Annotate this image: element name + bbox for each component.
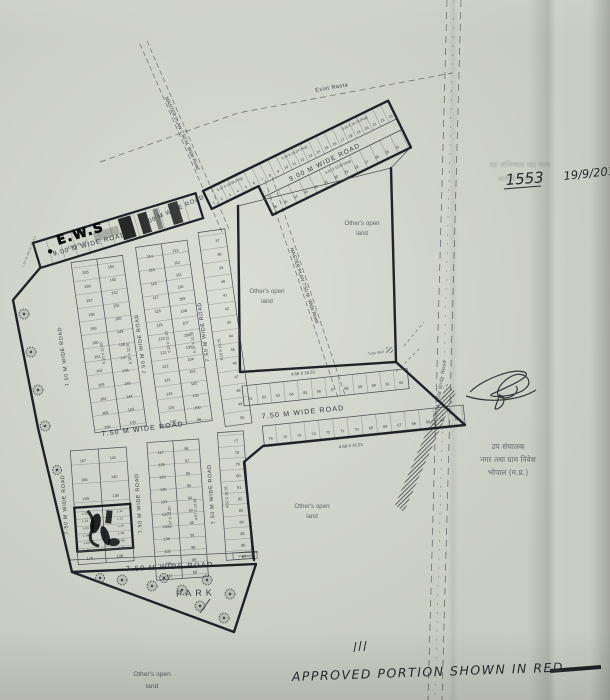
plot-number: L-12: [116, 509, 123, 513]
open-land-text: Other's open: [133, 671, 171, 678]
plot-number: 81: [237, 486, 242, 490]
plot-number: 72: [326, 431, 331, 435]
plot-number: L-06: [84, 548, 91, 552]
plot-number: 53: [276, 394, 281, 398]
approved-note-text: APPROVED PORTION SHOWN IN RED: [291, 660, 565, 685]
plot-number: 43: [227, 320, 232, 325]
open-land-text: land: [146, 683, 159, 690]
plot-number: 66: [412, 422, 417, 426]
plot-number: 42: [225, 307, 230, 312]
dim-label: 4.58 X 16.23: [291, 369, 316, 377]
road-label-750: 7.50 M WIDE ROAD: [207, 464, 217, 524]
plot-number: 92: [189, 521, 194, 525]
plot-number: 127: [157, 450, 164, 454]
road-label-750: 7.50 M WIDE ROAD: [134, 473, 144, 533]
plot-number: 48: [236, 388, 241, 393]
plot-number: 94: [188, 496, 193, 500]
plot-number: 140: [111, 475, 118, 479]
plot-number: 129: [159, 475, 166, 479]
plot-number: 44: [228, 334, 233, 339]
plot-number: 70: [354, 428, 359, 432]
open-land-label-4: Other's open land: [133, 671, 171, 690]
open-land-text: Other's open: [294, 503, 330, 510]
plot-number: 80: [236, 474, 241, 478]
plot-number: 113: [172, 248, 179, 253]
plot-number: 86: [241, 543, 246, 547]
open-land-text: Other's open: [344, 220, 380, 227]
plot-number: 46: [232, 361, 237, 366]
plot-number: L-10: [118, 524, 125, 528]
road-label-750: 7.50 M WIDE ROAD: [57, 326, 71, 386]
approval-note: APPROVED PORTION SHOWN IN RED: [291, 641, 601, 684]
plot-number: 119: [156, 323, 163, 328]
exist-24m-road: Exist.24.00M Wide Road: [396, 0, 461, 700]
plot-number: 39: [219, 266, 224, 271]
plot-number: 146: [122, 368, 129, 373]
plot-number: 111: [176, 273, 182, 278]
open-land-label-3: Other's open land: [294, 503, 330, 520]
central-plot-block: 7.50 M WIDE ROAD 15515615715815916016116…: [47, 229, 253, 448]
plot-number: 121: [160, 350, 167, 355]
master-plan-road-b-label: MASTER PLAN 7.50 M. Wide Road: [288, 247, 320, 324]
plot-number: 52: [262, 395, 267, 399]
plot-number: 41: [223, 293, 228, 298]
plot-number: 97: [185, 459, 190, 463]
plot-number: 38: [217, 252, 222, 257]
top-plot-strip: 6.10 X 13.58 (Avg) 6.10 X 15.24 (Avg) 6.…: [203, 101, 411, 238]
plot-number: 47: [234, 375, 239, 380]
plot-number: 69: [369, 426, 374, 430]
site-plan-drawing: Exist Rasta MASTER PLAN 7.50 M. Wide Roa…: [0, 0, 610, 700]
plot-number: L-09: [118, 531, 125, 535]
plot-number: 91: [190, 533, 195, 537]
open-land-text: land: [306, 513, 318, 520]
road-label-750: 7.50 M WIDE ROAD: [261, 405, 344, 421]
plot-number: L-02: [82, 519, 89, 523]
plot-number: 58: [344, 386, 349, 390]
plot-number: 151: [113, 304, 120, 309]
plot-number: L-03: [83, 526, 90, 530]
master-plan-road-a-label: MASTER PLAN 7.50 M. Wide Road: [163, 96, 201, 171]
plot-number: 112: [174, 261, 181, 266]
plot-number: 118: [154, 309, 161, 314]
date-handwritten: 19/9/201: [563, 164, 610, 183]
open-land-boundary: [238, 168, 396, 372]
plot-number: 37: [215, 239, 220, 244]
plot-number: 77: [234, 439, 239, 443]
plot-number: 93: [189, 509, 194, 513]
open-land-text: land: [261, 298, 273, 305]
plot-number: 56: [317, 389, 322, 393]
plot-number: 134: [163, 537, 170, 541]
plot-number: 114: [147, 254, 154, 259]
dim-label: 4.58 X 16.23: [339, 442, 364, 450]
mid-row1-cells: [242, 369, 409, 406]
scanned-layout-plan: Exist Rasta MASTER PLAN 7.50 M. Wide Roa…: [0, 0, 610, 700]
plot-number: 55: [303, 391, 308, 395]
plot-number: 139: [112, 494, 119, 498]
tick-mark: [359, 641, 361, 651]
park-trees: [96, 574, 236, 624]
plot-number: 159: [90, 326, 97, 331]
plot-number: 85: [240, 532, 245, 536]
plot-number: 54: [289, 392, 294, 396]
plot-number: 95: [187, 484, 192, 488]
plot-number: 131: [161, 500, 168, 504]
boundary-trees: [19, 309, 62, 475]
plot-number: 50: [240, 416, 245, 421]
plot-number: 49: [238, 402, 243, 407]
plot-number: 76: [268, 437, 273, 441]
plot-number: 57: [330, 388, 335, 392]
plot-number: 90: [191, 546, 196, 550]
plot-number: 71: [340, 429, 345, 433]
plot-number: L-11: [117, 516, 123, 520]
plot-number: 168: [81, 478, 88, 482]
plot-number: 141: [110, 456, 117, 460]
plot-number: 51: [248, 396, 253, 400]
open-land-label-1: Other's open land: [344, 220, 380, 237]
plot-number: 99: [197, 418, 202, 423]
stamp-department: नगर तथा ग्राम निवेश: [480, 455, 537, 464]
stamp-place: भोपाल (म.प्र.): [488, 468, 528, 477]
plot-number: 130: [160, 488, 167, 492]
open-land-text: land: [356, 230, 368, 237]
stamp-designation: उप संचालक: [491, 442, 525, 451]
plot-number: 73: [311, 432, 316, 436]
plot-number: 59: [358, 385, 363, 389]
plot-number: 65: [426, 420, 431, 424]
plot-number: 61: [385, 382, 390, 386]
plot-number: 74: [297, 434, 302, 438]
plot-number: 88: [193, 570, 198, 574]
plot-number: L-04: [83, 533, 90, 537]
plot-number: 62: [399, 381, 404, 385]
plot-number: 164: [100, 397, 107, 402]
open-land-text: Other's open: [249, 288, 285, 295]
plot-number: 60: [372, 384, 377, 388]
plot-number: 75: [283, 435, 288, 439]
plot-number: 79: [235, 462, 240, 466]
plot-number: 104: [187, 357, 194, 362]
plot-number: 96: [186, 471, 191, 475]
signature: [466, 371, 536, 409]
exist-rasta-label: Exist Rasta: [315, 82, 349, 94]
park-label: PARK: [176, 587, 216, 598]
plot-number: 83: [239, 509, 244, 513]
plot-number: 40: [221, 280, 226, 285]
plot-number: L-05: [84, 541, 91, 545]
office-annotations: यह अभिन्यास खंड मान्य शर्तों के अधीन 155…: [466, 160, 610, 477]
plot-number: 128: [158, 463, 165, 467]
lower-a-bottom-numbers: 170138: [87, 554, 124, 561]
park: PARK: [72, 564, 256, 632]
plot-number: 167: [80, 459, 87, 463]
plot-number: 68: [383, 425, 388, 429]
plot-number: 78: [235, 451, 240, 455]
plot-number: 135: [164, 549, 171, 553]
plot-number: 169: [82, 497, 89, 501]
plot-number: 98: [184, 447, 189, 451]
tube-well-label: Tube Well: [368, 350, 385, 356]
plot-number: 115: [149, 268, 156, 273]
plot-number: 67: [397, 423, 402, 427]
tube-well-mark: [386, 347, 393, 353]
tick-mark: [354, 642, 356, 652]
plot-number: 45: [230, 348, 235, 353]
plot-number: 116: [151, 282, 158, 287]
plot-number: 117: [152, 295, 159, 300]
plot-number: 109: [179, 297, 186, 302]
plot-number: L-07: [119, 546, 126, 550]
tick-mark: [364, 641, 366, 651]
hatched-road-band: [395, 384, 456, 512]
plot-number: 84: [239, 520, 244, 524]
plot-number: 110: [177, 285, 184, 290]
open-land-label-2: Other's open land: [249, 288, 285, 305]
plot-number: 82: [238, 497, 243, 501]
